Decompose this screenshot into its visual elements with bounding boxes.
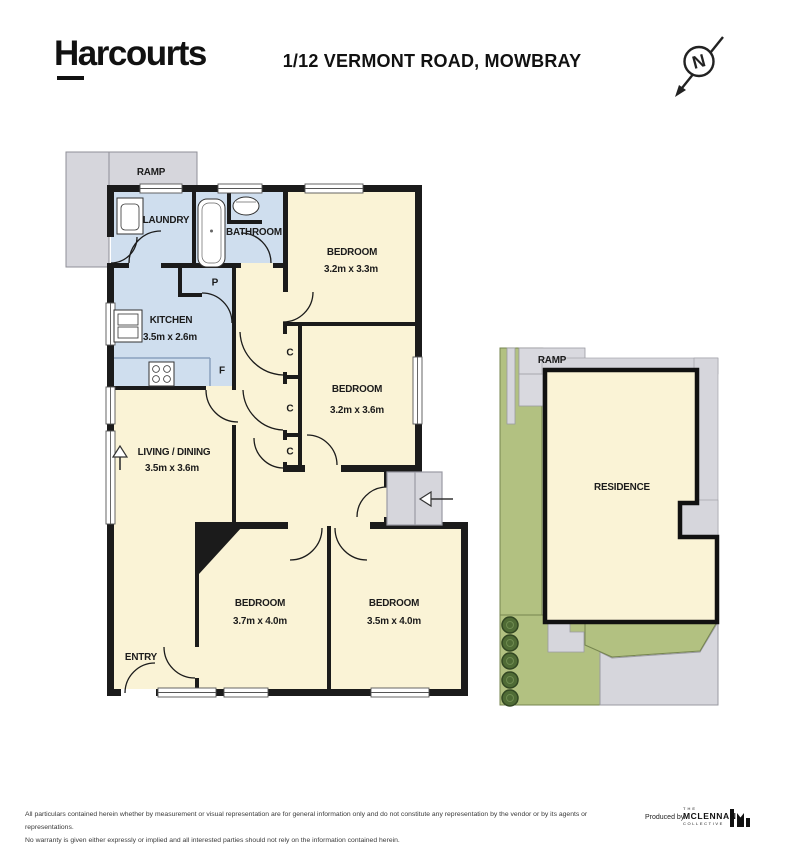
room-label-bedroom1: BEDROOM	[327, 246, 377, 258]
room-dims-bedroom4: 3.5m x 4.0m	[367, 615, 421, 627]
disclaimer-line-2: No warranty is given either expressly or…	[25, 834, 615, 847]
page-title: 1/12 VERMONT ROAD, MOWBRAY	[283, 51, 582, 72]
site-label-ramp: RAMP	[538, 354, 566, 366]
room-label-bedroom3: BEDROOM	[235, 597, 285, 609]
path-notch	[676, 500, 718, 540]
path-strip	[507, 348, 515, 424]
footer-disclaimer: All particulars contained herein whether…	[25, 808, 615, 847]
room-label-kitchen: KITCHEN	[150, 314, 193, 326]
logo-underline	[57, 76, 84, 80]
closet-marker-1: C	[286, 348, 293, 359]
room-label-entry: ENTRY	[125, 651, 157, 663]
produced-by-text: Produced by	[645, 814, 684, 821]
room-label-bedroom4: BEDROOM	[369, 597, 419, 609]
bush-icons	[502, 617, 518, 706]
room-dims-kitchen: 3.5m x 2.6m	[143, 331, 197, 343]
side-porch	[387, 472, 453, 525]
pantry-marker: P	[212, 278, 219, 289]
brand-name-text: MCLENNAN	[683, 811, 743, 821]
bathtub-icon	[198, 199, 225, 267]
room-label-bathroom: BATHROOM	[226, 226, 282, 238]
floorplan-page: Harcourts 1/12 VERMONT ROAD, MOWBRAY N R…	[0, 0, 800, 862]
floorplan-drawing	[0, 0, 800, 862]
closet-marker-2: C	[286, 404, 293, 415]
brand-bottom-text: COLLECTIVE	[683, 821, 743, 826]
mclennan-brand: THE MCLENNAN COLLECTIVE	[683, 806, 743, 826]
site-plan	[500, 348, 718, 706]
stove-icon	[149, 362, 174, 386]
room-label-living: LIVING / DINING	[138, 446, 211, 458]
room-dims-bedroom3: 3.7m x 4.0m	[233, 615, 287, 627]
bathroom-sink-icon	[233, 197, 259, 215]
disclaimer-line-1: All particulars contained herein whether…	[25, 808, 615, 834]
room-label-laundry: LAUNDRY	[143, 214, 190, 226]
harcourts-logo: Harcourts	[54, 34, 206, 74]
fridge-marker: F	[219, 366, 225, 377]
room-dims-bedroom2: 3.2m x 3.6m	[330, 404, 384, 416]
site-label-residence: RESIDENCE	[594, 481, 650, 493]
kitchen-sink-icon	[114, 310, 142, 342]
residence-outline	[545, 370, 717, 622]
laundry-tub-icon	[117, 198, 143, 234]
closet-marker-3: C	[286, 447, 293, 458]
room-label-bedroom2: BEDROOM	[332, 383, 382, 395]
room-label-ramp: RAMP	[137, 166, 165, 178]
room-dims-living: 3.5m x 3.6m	[145, 462, 199, 474]
room-dims-bedroom1: 3.2m x 3.3m	[324, 263, 378, 275]
